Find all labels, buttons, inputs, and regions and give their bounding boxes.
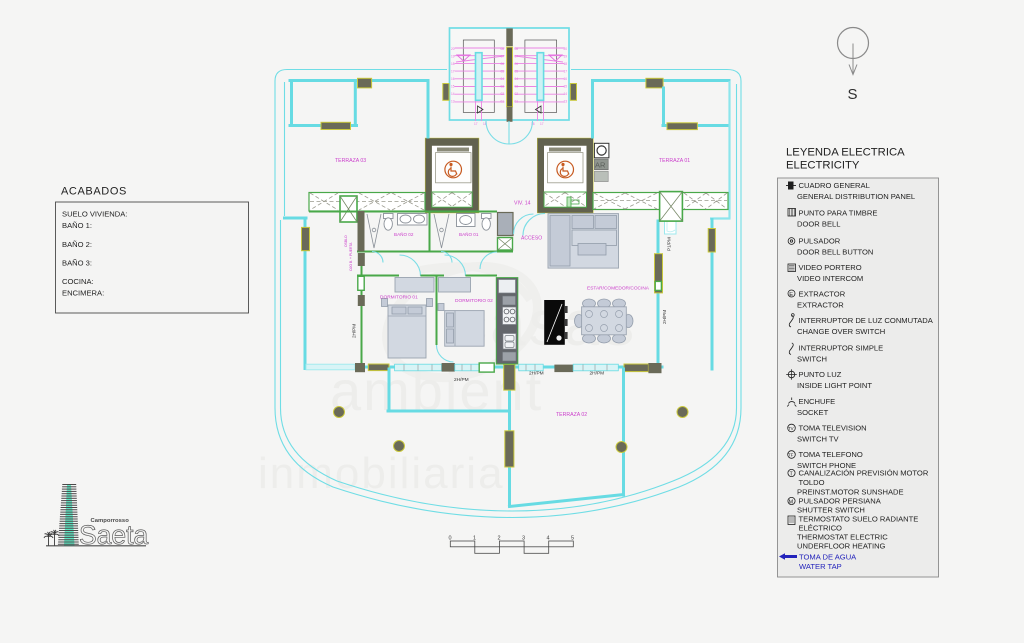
svg-text:19: 19 (564, 55, 568, 59)
svg-text:INTERRUPTOR DE LUZ CONMUTADA: INTERRUPTOR DE LUZ CONMUTADA (799, 316, 934, 325)
svg-text:PREINST.MOTOR SUNSHADE: PREINST.MOTOR SUNSHADE (797, 488, 904, 497)
svg-text:E: E (789, 292, 793, 298)
svg-text:PULSADOR PERSIANA: PULSADOR PERSIANA (799, 497, 882, 506)
svg-text:08: 08 (515, 47, 519, 51)
svg-text:04: 04 (501, 77, 505, 81)
svg-text:03: 03 (501, 85, 505, 89)
svg-text:19: 19 (451, 55, 455, 59)
svg-text:OJO B. + PUERTA: OJO B. + PUERTA (349, 242, 353, 271)
svg-text:03: 03 (515, 85, 519, 89)
svg-text:TV: TV (788, 426, 794, 431)
svg-text:OSBLO: OSBLO (344, 235, 348, 247)
svg-text:TOLDO: TOLDO (799, 478, 825, 487)
svg-text:AR: AR (595, 161, 606, 170)
svg-text:SUELO VIVIENDA:: SUELO VIVIENDA: (62, 210, 127, 219)
svg-text:INTERRUPTOR SIMPLE: INTERRUPTOR SIMPLE (799, 344, 884, 353)
svg-text:08: 08 (501, 47, 505, 51)
svg-text:TF: TF (788, 453, 794, 458)
svg-text:PUNTO LUZ: PUNTO LUZ (799, 370, 842, 379)
svg-text:ELECTRICITY: ELECTRICITY (786, 160, 860, 172)
svg-text:EXTRACTOR: EXTRACTOR (799, 290, 846, 299)
svg-text:06: 06 (515, 62, 519, 66)
svg-text:01: 01 (515, 100, 519, 104)
svg-text:14: 14 (564, 92, 568, 96)
svg-text:TERRAZA 03: TERRAZA 03 (335, 158, 366, 164)
svg-text:15: 15 (451, 85, 455, 89)
svg-text:BAÑO 2:: BAÑO 2: (62, 240, 92, 249)
svg-text:SHUTTER SWITCH: SHUTTER SWITCH (797, 506, 865, 515)
svg-text:DOOR BELL BUTTON: DOOR BELL BUTTON (797, 248, 873, 257)
svg-text:ACABADOS: ACABADOS (61, 186, 127, 198)
svg-text:04: 04 (515, 77, 519, 81)
svg-text:SWITCH: SWITCH (797, 355, 827, 364)
svg-text:TERRAZA 01: TERRAZA 01 (659, 158, 690, 164)
svg-text:17: 17 (451, 70, 455, 74)
svg-text:VIDEO PORTERO: VIDEO PORTERO (799, 263, 862, 272)
svg-text:EXTRACTOR: EXTRACTOR (797, 301, 844, 310)
svg-text:1: 1 (473, 536, 476, 542)
svg-text:UNDERFLOOR HEATING: UNDERFLOOR HEATING (797, 542, 886, 551)
svg-text:2H/PM: 2H/PM (590, 371, 605, 377)
svg-text:15: 15 (564, 85, 568, 89)
svg-text:BAÑO 02: BAÑO 02 (394, 231, 414, 237)
svg-text:SOCKET: SOCKET (797, 408, 829, 417)
svg-text:S: S (848, 86, 858, 103)
svg-text:BAÑO 3:: BAÑO 3: (62, 259, 92, 268)
svg-text:07: 07 (501, 55, 505, 59)
svg-text:TOMA TELEFONO: TOMA TELEFONO (799, 450, 863, 459)
svg-text:TERRAZA 02: TERRAZA 02 (556, 412, 587, 418)
svg-text:THERMOSTAT ELECTRIC: THERMOSTAT ELECTRIC (797, 533, 888, 542)
svg-text:01: 01 (501, 100, 505, 104)
svg-text:INSIDE LIGHT POINT: INSIDE LIGHT POINT (797, 381, 872, 390)
svg-text:16: 16 (564, 77, 568, 81)
svg-text:CANALIZACIÓN PREVISIÓN MOTOR: CANALIZACIÓN PREVISIÓN MOTOR (799, 469, 929, 478)
svg-text:13: 13 (564, 100, 568, 104)
svg-text:02: 02 (501, 92, 505, 96)
svg-text:06: 06 (501, 62, 505, 66)
svg-text:CUADRO GENERAL: CUADRO GENERAL (799, 181, 870, 190)
svg-text:16: 16 (451, 77, 455, 81)
svg-text:02: 02 (515, 92, 519, 96)
svg-text:inmobiliaria: inmobiliaria (258, 449, 505, 498)
svg-text:VIDEO INTERCOM: VIDEO INTERCOM (797, 274, 863, 283)
svg-text:PUNTO PARA TIMBRE: PUNTO PARA TIMBRE (799, 209, 878, 218)
svg-text:20: 20 (451, 47, 455, 51)
svg-text:BAÑO 1:: BAÑO 1: (62, 221, 92, 230)
svg-text:ENCIMERA:: ENCIMERA: (62, 289, 104, 298)
svg-text:17: 17 (474, 122, 478, 126)
svg-text:TERMOSTATO SUELO RADIANTE: TERMOSTATO SUELO RADIANTE (799, 515, 919, 524)
svg-text:14: 14 (451, 92, 455, 96)
svg-text:ESTAR/COMEDOR/COCINA: ESTAR/COMEDOR/COCINA (587, 286, 650, 292)
svg-text:M: M (789, 500, 794, 506)
svg-text:ELÉCTRICO: ELÉCTRICO (799, 524, 843, 533)
svg-text:DORMITORIO 01: DORMITORIO 01 (380, 295, 418, 301)
svg-text:PULSADOR: PULSADOR (799, 237, 841, 246)
svg-text:5: 5 (571, 536, 574, 542)
svg-text:18: 18 (564, 62, 568, 66)
svg-text:TOMA DE AGUA: TOMA DE AGUA (799, 553, 857, 562)
svg-text:0: 0 (449, 536, 452, 542)
svg-text:DORMITORIO 02: DORMITORIO 02 (455, 298, 493, 304)
svg-text:2H/PM: 2H/PM (454, 377, 469, 383)
svg-text:17: 17 (564, 70, 568, 74)
svg-text:20: 20 (564, 47, 568, 51)
svg-text:ACCESO: ACCESO (521, 236, 542, 242)
svg-text:2H/PM: 2H/PM (662, 310, 667, 324)
svg-text:18: 18 (451, 62, 455, 66)
svg-text:05: 05 (501, 70, 505, 74)
svg-text:05: 05 (515, 70, 519, 74)
svg-text:DOOR BELL: DOOR BELL (797, 220, 840, 229)
svg-text:LEYENDA ELECTRICA: LEYENDA ELECTRICA (786, 147, 905, 159)
svg-text:SWITCH TV: SWITCH TV (797, 435, 840, 444)
svg-text:2H/PM: 2H/PM (352, 324, 357, 338)
svg-text:2: 2 (498, 536, 501, 542)
svg-text:4: 4 (547, 536, 550, 542)
svg-text:07: 07 (515, 55, 519, 59)
svg-text:Saeta: Saeta (79, 520, 149, 550)
svg-text:3: 3 (522, 536, 525, 542)
svg-text:BAÑO 01: BAÑO 01 (459, 231, 479, 237)
svg-text:WATER TAP: WATER TAP (799, 562, 842, 571)
svg-text:ENCHUFE: ENCHUFE (799, 397, 836, 406)
svg-text:VIV. 14: VIV. 14 (514, 201, 531, 207)
svg-text:COCINA:: COCINA: (62, 277, 94, 286)
svg-text:TOMA TELEVISION: TOMA TELEVISION (799, 424, 867, 433)
svg-text:2H/PM: 2H/PM (529, 371, 544, 377)
svg-text:13: 13 (451, 100, 455, 104)
svg-text:P1/PM: P1/PM (667, 237, 672, 251)
svg-text:17: 17 (540, 122, 544, 126)
svg-text:GENERAL DISTRIBUTION PANEL: GENERAL DISTRIBUTION PANEL (797, 192, 915, 201)
svg-text:CHANGE OVER SWITCH: CHANGE OVER SWITCH (797, 327, 885, 336)
